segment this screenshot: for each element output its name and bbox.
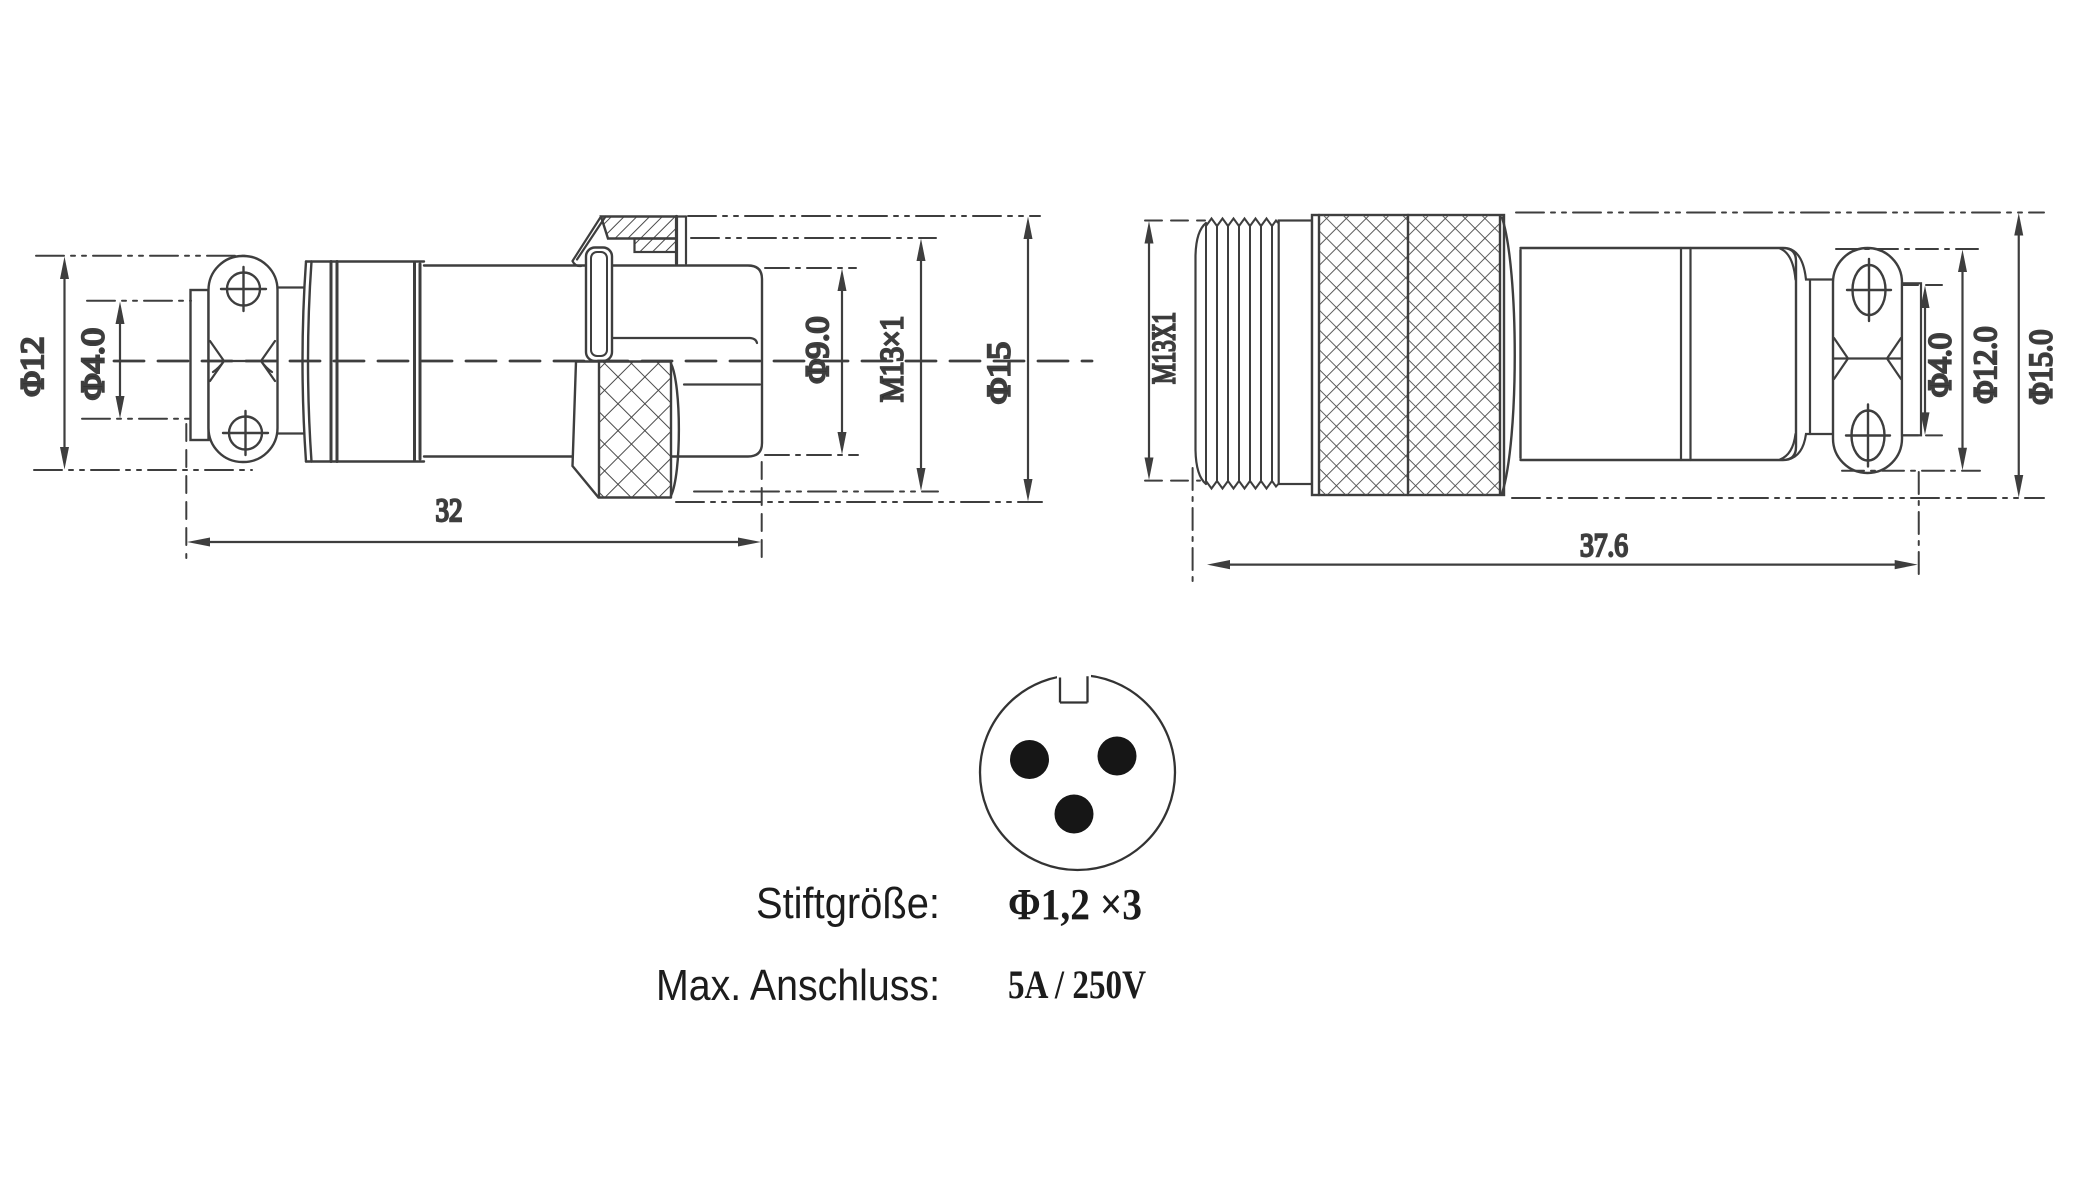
svg-text:5A / 250V: 5A / 250V [1008,962,1146,1007]
svg-text:Φ15.0: Φ15.0 [2024,330,2060,405]
svg-text:Φ15: Φ15 [982,342,1018,404]
svg-text:Φ4.0: Φ4.0 [76,328,112,400]
svg-text:Φ12: Φ12 [15,337,51,397]
svg-text:Max. Anschluss:: Max. Anschluss: [656,961,940,1010]
svg-text:Stiftgröße:: Stiftgröße: [756,879,940,928]
svg-text:Φ9.0: Φ9.0 [800,317,836,384]
svg-text:Φ12.0: Φ12.0 [1968,327,2004,404]
svg-text:Φ4.0: Φ4.0 [1923,333,1959,397]
svg-text:32: 32 [436,493,463,529]
svg-text:37.6: 37.6 [1580,528,1628,564]
svg-text:Φ1,2 ×3: Φ1,2 ×3 [1008,880,1142,929]
svg-text:M13X1: M13X1 [1147,312,1183,384]
svg-text:M13×1: M13×1 [875,316,911,402]
